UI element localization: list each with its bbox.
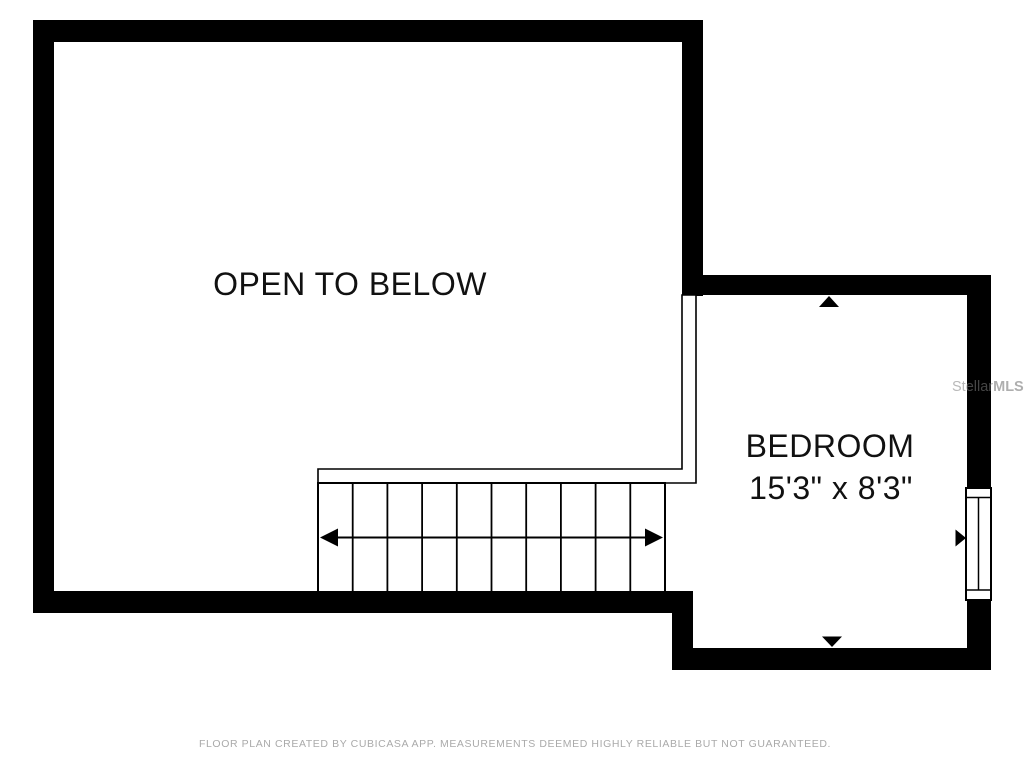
bedroom-window xyxy=(966,488,991,600)
wall-top xyxy=(33,20,703,42)
footer-disclaimer: FLOOR PLAN CREATED BY CUBICASA APP. MEAS… xyxy=(199,738,831,750)
marker-triangle-bottom-icon xyxy=(822,637,842,648)
wall-bedroom-right xyxy=(967,275,991,670)
watermark-brand-bold: MLS xyxy=(993,379,1024,395)
wall-bedroom-top xyxy=(682,275,991,295)
stair-railing xyxy=(318,295,696,483)
marker-triangle-window-icon xyxy=(956,530,967,547)
staircase xyxy=(318,483,665,592)
bedroom-label: BEDROOM xyxy=(746,428,915,464)
bedroom-dimensions: 15'3" x 8'3" xyxy=(749,470,913,506)
wall-connector xyxy=(672,591,693,670)
watermark-brand-regular: Stellar xyxy=(952,379,993,395)
open-to-below-label: OPEN TO BELOW xyxy=(213,266,487,302)
wall-bottom-main xyxy=(33,591,693,613)
wall-bedroom-bottom xyxy=(672,648,991,670)
wall-right-main xyxy=(682,20,703,296)
marker-triangle-top-icon xyxy=(819,296,839,307)
wall-left xyxy=(33,20,54,613)
mls-watermark: StellarMLS xyxy=(952,379,1024,395)
floor-plan-drawing: OPEN TO BELOW BEDROOM 15'3" x 8'3" Stell… xyxy=(0,0,1024,768)
floor-plan: OPEN TO BELOW BEDROOM 15'3" x 8'3" Stell… xyxy=(0,0,1024,768)
